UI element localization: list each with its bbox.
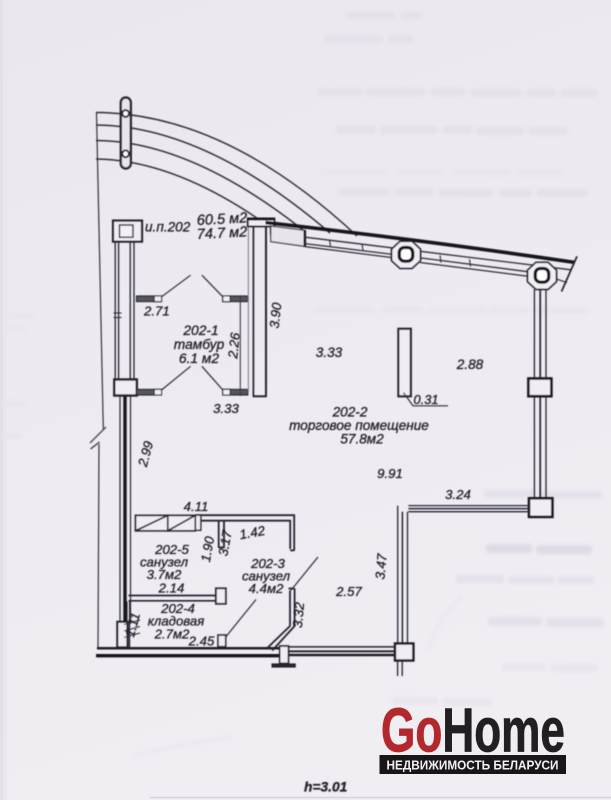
svg-text:3.47: 3.47 [372,553,389,581]
svg-text:2.45: 2.45 [188,634,215,649]
svg-text:3.90: 3.90 [267,301,285,329]
svg-text:и.п.202: и.п.202 [145,220,191,235]
svg-text:2.71: 2.71 [143,304,170,319]
svg-text:h=3.01: h=3.01 [304,780,347,795]
svg-text:3.32: 3.32 [290,601,307,629]
svg-text:3.24: 3.24 [445,487,471,502]
svg-text:2.7м2: 2.7м2 [154,627,190,642]
svg-text:НЕДВИЖИМОСТЬ БЕЛАРУСИ: НЕДВИЖИМОСТЬ БЕЛАРУСИ [387,758,559,773]
svg-text:2.14: 2.14 [158,581,185,596]
svg-text:202-1: 202-1 [182,323,218,338]
svg-text:тамбур: тамбур [174,337,225,352]
svg-text:4.11: 4.11 [184,499,209,514]
svg-text:9.91: 9.91 [377,466,403,481]
svg-text:6.1 м2: 6.1 м2 [179,351,219,366]
svg-text:2.88: 2.88 [456,357,484,372]
svg-text:2.57: 2.57 [335,584,362,599]
svg-text:3.33: 3.33 [316,345,343,360]
svg-text:0.31: 0.31 [414,392,439,407]
svg-text:57.8м2: 57.8м2 [340,432,384,447]
svg-text:2.26: 2.26 [225,331,243,360]
svg-text:4.4м2: 4.4м2 [249,581,284,596]
svg-text:74.7 м2: 74.7 м2 [196,224,247,243]
svg-text:3.33: 3.33 [213,401,239,416]
